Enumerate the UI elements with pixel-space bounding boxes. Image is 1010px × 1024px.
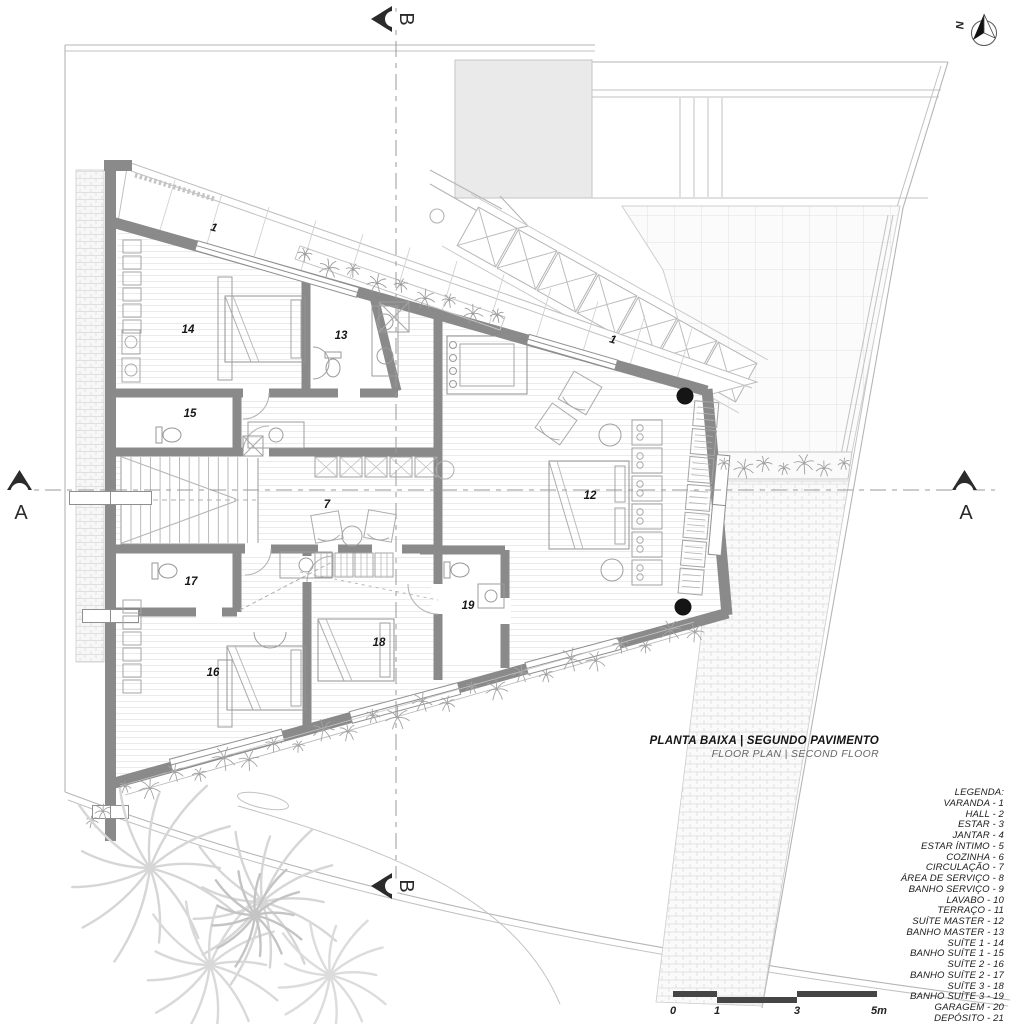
floor-plan-drawing: A A B B N 0 1 3 5m PL [0,0,1010,1024]
scale-0: 0 [670,1005,677,1017]
room-label-16: 16 [207,667,220,679]
deco-path [210,932,274,965]
section-marker-a-left: A [7,470,32,524]
deco-path [150,778,151,789]
deco-path [687,633,695,638]
deco-path [694,633,695,642]
window-symbol [70,492,152,505]
room-label-7: 7 [324,499,331,511]
drawing-title: PLANTA BAIXA | SEGUNDO PAVIMENTO [649,734,879,747]
legend-item: BANHO SERVIÇO - 9 [901,885,1004,896]
legend-item: DEPÓSITO - 21 [901,1014,1004,1024]
deco-path [186,901,210,965]
column-top [677,388,694,405]
deco-path [348,732,353,739]
deco-path [249,760,257,766]
deco-path [447,704,449,712]
deco-path [546,675,549,682]
deco-path [82,851,150,868]
deco-path [330,975,386,1004]
section-marker-a-right: A [952,470,977,524]
deco-path [150,789,154,799]
deco-path [321,730,323,741]
deco-path [83,868,150,928]
deco-path [283,933,330,975]
plant [640,642,652,654]
room-label-19: 19 [462,600,475,612]
legend-item: VARANDA - 1 [901,799,1004,810]
deco-path [298,746,299,752]
deco-path [589,661,595,669]
deco-path [150,826,230,868]
deco-path [286,975,331,1014]
deco-path [262,898,324,902]
deco-path [150,868,160,943]
palm-tree [279,921,386,1024]
column-bottom [675,599,692,616]
deco-path [123,787,126,793]
deco-path [443,704,448,711]
section-label-b-bottom: B [395,879,417,892]
room-label-15: 15 [184,408,197,420]
deco-path [393,718,398,729]
legend-item: BANHO MASTER - 13 [901,928,1004,939]
section-label-a-left: A [14,502,28,524]
deco-path [493,690,497,700]
deco-path [645,647,650,651]
deco-path [596,661,598,671]
room-label-13: 13 [335,330,348,342]
legend-items: VARANDA - 1HALL - 2ESTAR - 3JANTAR - 4ES… [901,799,1004,1024]
deco-path [236,832,262,902]
deco-path [330,948,383,976]
deco-path [670,631,671,642]
deco-path [170,773,175,781]
north-arrow-icon: N [953,14,997,46]
room-label-12: 12 [584,490,597,502]
deco-path [120,789,150,869]
section-label-a-right: A [959,502,973,524]
deco-path [144,789,149,799]
garage-roof-block [455,60,592,198]
deco-path [125,787,128,792]
deco-path [195,775,199,781]
room-label-14: 14 [182,324,195,336]
scale-1: 1 [714,1005,720,1017]
deco-path [330,975,337,1024]
legend: LEGENDA: VARANDA - 1HALL - 2ESTAR - 3JAN… [901,788,1004,1024]
scale-5m: 5m [871,1005,887,1017]
deco-path [274,744,280,749]
deco-path [224,759,226,771]
deco-path [153,915,210,966]
drawing-subtitle: FLOOR PLAN | SECOND FLOOR [712,749,880,760]
room-label-18: 18 [373,637,386,649]
deco-path [330,972,376,975]
legend-item: BANHO SUÍTE 2 - 17 [901,971,1004,982]
deco-path [641,647,646,651]
deco-path [156,965,210,1013]
deco-path [210,965,277,1000]
scale-3: 3 [794,1005,800,1017]
deco-path [401,285,402,292]
deco-path [210,965,218,1024]
deco-path [346,732,348,741]
deco-path [199,775,201,782]
deco-path [643,642,646,647]
deco-path [249,761,250,771]
deco-path [497,690,503,700]
legend-item: ESTAR ÍNTIMO - 5 [901,842,1004,853]
room-label-17: 17 [185,576,198,588]
deco-path [150,864,220,868]
floor-plan-canvas: A A B B N 0 1 3 5m PL [0,0,1010,1024]
deco-path [543,675,547,681]
deco-path [249,757,259,760]
deco-path [210,965,249,1021]
deco-path [150,868,234,912]
north-label: N [953,21,965,30]
section-label-b-top: B [395,12,417,25]
section-marker-b-top: B [371,6,417,32]
deco-path [310,923,330,976]
deco-path [115,868,151,962]
deco-path [398,718,403,729]
plant [539,669,553,683]
paving-left [76,170,104,662]
deco-path [298,746,302,750]
